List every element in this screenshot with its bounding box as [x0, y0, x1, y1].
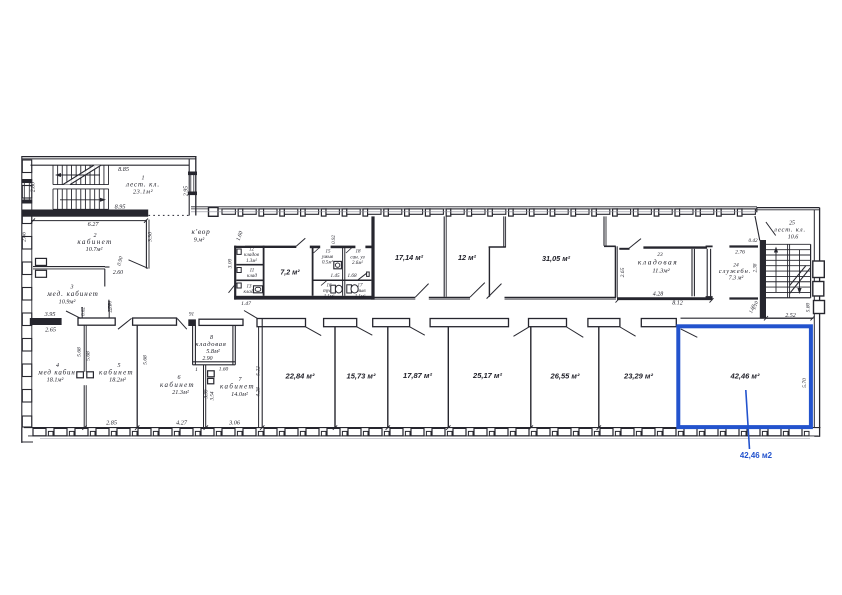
svg-text:1.68: 1.68	[347, 273, 356, 279]
svg-text:кладовая: кладовая	[638, 258, 678, 267]
svg-text:3.95: 3.95	[44, 311, 56, 318]
svg-text:умыв: умыв	[321, 254, 334, 260]
svg-text:2.90: 2.90	[202, 356, 212, 362]
svg-text:14.0м²: 14.0м²	[231, 391, 248, 398]
svg-text:сан. уз: сан. уз	[350, 255, 364, 261]
svg-text:3.54: 3.54	[209, 391, 216, 400]
svg-text:мед. кабинет: мед. кабинет	[46, 290, 99, 298]
svg-text:21.3м²: 21.3м²	[172, 389, 189, 396]
svg-text:7.3 м²: 7.3 м²	[729, 276, 744, 282]
svg-text:клад: клад	[243, 288, 253, 295]
svg-text:5.68: 5.68	[143, 355, 149, 365]
svg-text:9.м²: 9.м²	[194, 237, 205, 244]
svg-text:1.1м²: 1.1м²	[324, 293, 335, 299]
svg-text:мед кабин: мед кабин	[37, 370, 75, 377]
svg-text:2.70: 2.70	[108, 303, 114, 312]
svg-text:2.6м²: 2.6м²	[352, 260, 363, 266]
svg-text:2.38: 2.38	[754, 263, 759, 272]
svg-text:служебн.: служебн.	[719, 268, 751, 275]
svg-text:лест. кл.: лест. кл.	[125, 182, 160, 189]
svg-text:6.27: 6.27	[88, 221, 100, 228]
svg-text:8.85: 8.85	[118, 166, 129, 173]
svg-text:0.42: 0.42	[748, 237, 757, 244]
svg-text:1.1м²: 1.1м²	[355, 293, 366, 299]
svg-text:18.1м²: 18.1м²	[47, 377, 64, 384]
svg-text:8.95: 8.95	[115, 203, 126, 210]
svg-text:4.28: 4.28	[256, 387, 262, 397]
svg-text:10.7м²: 10.7м²	[86, 246, 103, 253]
svg-text:22,84 м²: 22,84 м²	[285, 372, 315, 381]
svg-text:31,05 м²: 31,05 м²	[542, 254, 571, 263]
svg-text:лест. кл.: лест. кл.	[773, 227, 806, 234]
svg-text:5.22: 5.22	[256, 366, 262, 376]
svg-text:8: 8	[210, 335, 213, 341]
svg-text:2.95: 2.95	[184, 186, 190, 196]
svg-text:1.60: 1.60	[219, 367, 229, 373]
svg-text:42,46 м²: 42,46 м²	[730, 372, 760, 381]
svg-text:17,14 м²: 17,14 м²	[395, 253, 424, 262]
svg-text:клад: клад	[247, 272, 257, 279]
svg-text:4.28: 4.28	[653, 290, 664, 297]
svg-text:11.3м²: 11.3м²	[652, 268, 670, 275]
svg-text:26,55 м²: 26,55 м²	[550, 372, 580, 381]
svg-text:3.36: 3.36	[148, 232, 154, 243]
svg-text:0.92: 0.92	[332, 235, 337, 244]
svg-text:кабинет: кабинет	[160, 381, 195, 389]
svg-text:23,29 м²: 23,29 м²	[623, 372, 653, 381]
svg-text:25,17 м²: 25,17 м²	[472, 371, 502, 380]
svg-text:5.68: 5.68	[86, 351, 92, 361]
svg-text:0.62: 0.62	[81, 307, 87, 316]
svg-text:10.9м²: 10.9м²	[59, 299, 76, 306]
svg-text:кладов: кладов	[244, 251, 260, 258]
svg-text:к'вор: к'вор	[191, 228, 210, 236]
svg-text:10.6: 10.6	[788, 235, 799, 241]
svg-text:1.3м²: 1.3м²	[246, 258, 257, 264]
svg-text:42,46 м2: 42,46 м2	[740, 451, 773, 460]
svg-text:2.80: 2.80	[31, 182, 37, 192]
svg-text:4.27: 4.27	[176, 419, 188, 426]
svg-text:18.2м²: 18.2м²	[109, 377, 126, 384]
svg-text:23.1м²: 23.1м²	[133, 189, 153, 196]
svg-text:5.80: 5.80	[805, 302, 811, 312]
svg-text:1.47: 1.47	[241, 301, 251, 307]
svg-text:4: 4	[56, 362, 59, 369]
svg-text:2.65: 2.65	[620, 267, 626, 277]
svg-text:12 м²: 12 м²	[458, 253, 477, 262]
svg-text:2.66: 2.66	[22, 232, 28, 242]
svg-text:15,73 м²: 15,73 м²	[347, 372, 376, 381]
svg-text:5.68: 5.68	[77, 347, 83, 357]
svg-text:7,2 м²: 7,2 м²	[280, 270, 300, 277]
svg-text:5.8м²: 5.8м²	[206, 348, 220, 355]
svg-text:2.76: 2.76	[735, 249, 745, 255]
svg-text:1: 1	[195, 367, 198, 373]
svg-text:2.85: 2.85	[106, 419, 117, 426]
svg-text:5.70: 5.70	[802, 378, 808, 388]
svg-text:2.65: 2.65	[45, 327, 56, 334]
svg-text:2.60: 2.60	[113, 270, 123, 276]
svg-text:17,87 м²: 17,87 м²	[403, 371, 432, 380]
svg-text:кабинет: кабинет	[99, 369, 134, 377]
svg-text:0.5м²: 0.5м²	[322, 260, 333, 266]
svg-text:кабинет: кабинет	[77, 238, 112, 246]
svg-text:1.45: 1.45	[330, 272, 339, 279]
svg-text:3.06: 3.06	[228, 419, 241, 426]
svg-text:91: 91	[189, 312, 195, 318]
svg-text:8.12: 8.12	[672, 301, 683, 307]
svg-text:3.00: 3.00	[228, 258, 234, 269]
svg-text:кабинет: кабинет	[220, 383, 255, 391]
